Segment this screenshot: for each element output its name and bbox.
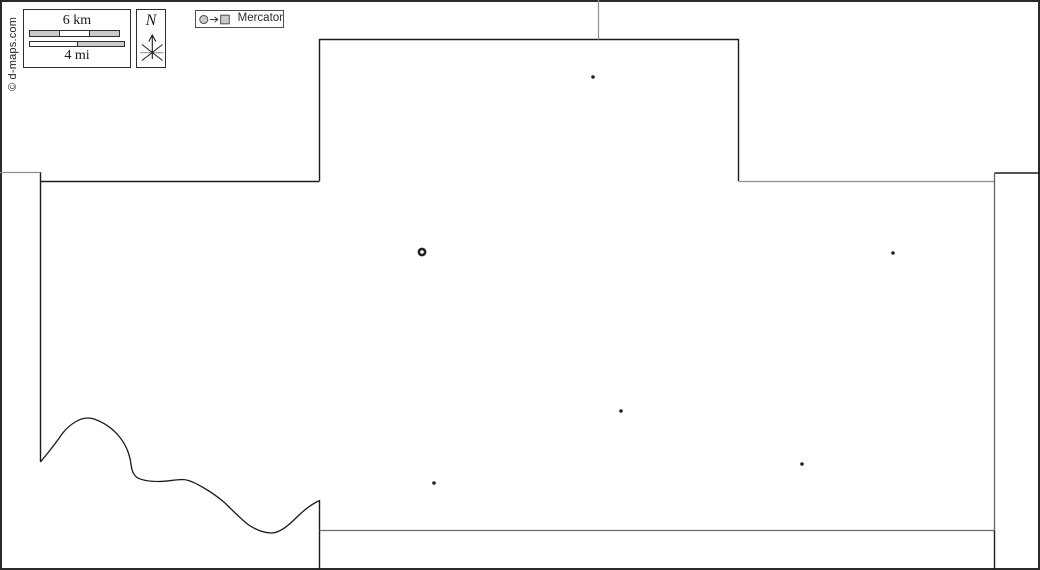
north-arrow-icon (137, 33, 165, 66)
boundary-river-boundary (41, 418, 320, 533)
scale-mi-label: 4 mi (24, 49, 130, 63)
town-dot (800, 462, 804, 466)
scale-bar-mi (29, 41, 125, 47)
town-dot (619, 409, 623, 413)
county-seat-ring (419, 249, 425, 255)
projection-label: Mercator (236, 13, 283, 25)
copyright-text: © d-maps.com (7, 17, 19, 91)
scale-mi-segment (30, 42, 77, 46)
town-dot (591, 75, 595, 79)
compass-n-label: N (137, 13, 165, 29)
scale-km-label: 6 km (24, 14, 130, 28)
town-dot (891, 251, 895, 255)
projection-legend: Mercator (195, 10, 284, 28)
scale-km-segment (30, 31, 59, 36)
map-canvas: 6 km 4 mi N Mercator © d-maps. (0, 0, 1040, 570)
town-dot (432, 481, 436, 485)
scale-mi-segment (77, 42, 125, 46)
map-outline-svg (0, 0, 1040, 570)
scale-bar-box: 6 km 4 mi (23, 9, 131, 68)
city-to-square-symbol-icon (198, 13, 234, 26)
compass-box: N (136, 9, 166, 68)
scale-bar-km (29, 30, 120, 37)
boundary-north-protrusion (320, 40, 739, 182)
scale-km-segment (89, 31, 119, 36)
scale-km-segment (59, 31, 89, 36)
boundary-image-frame (1, 1, 1039, 569)
